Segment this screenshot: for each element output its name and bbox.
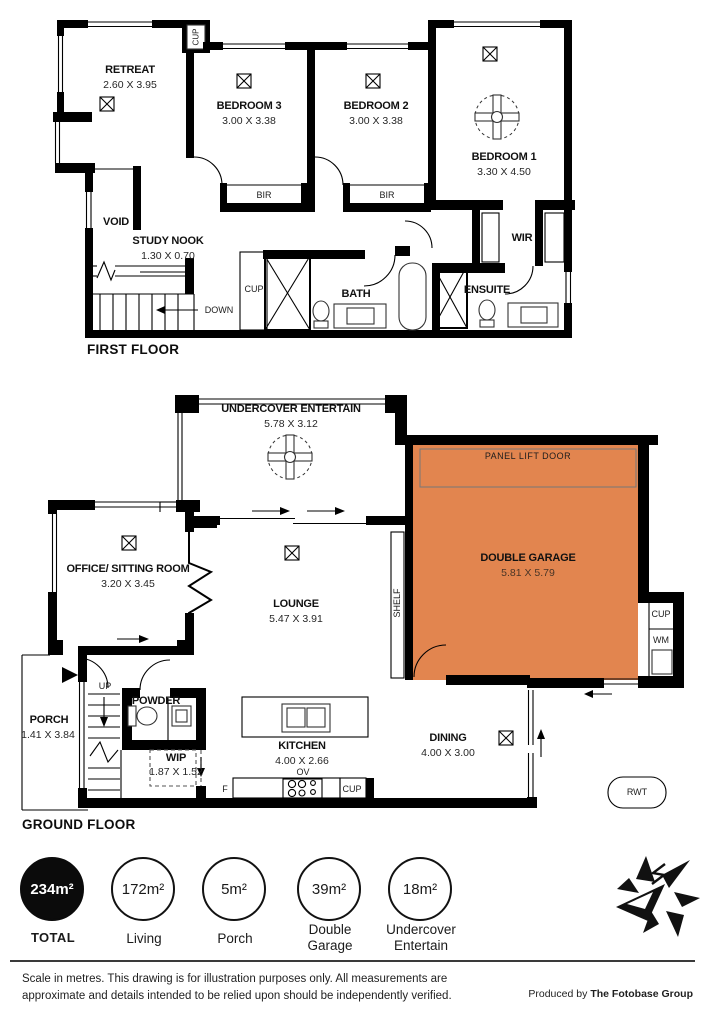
- room-dims-kitchen: 4.00 X 2.66: [275, 755, 329, 767]
- toilet-icon: [128, 706, 157, 726]
- washing-machine-icon: [652, 650, 672, 674]
- room-label-void: VOID: [103, 216, 129, 228]
- fotobase-compass-logo: [616, 856, 700, 937]
- cup-label-top: CUP: [192, 29, 201, 46]
- ground-floor-plan: [22, 395, 684, 810]
- room-label-powder: POWDER: [132, 695, 180, 707]
- room-dims-study-nook: 1.30 X 0.70: [141, 250, 195, 262]
- wm-label: WM: [653, 635, 669, 645]
- room-label-garage: DOUBLE GARAGE: [480, 552, 575, 564]
- area-circle-porch: 5m²: [202, 857, 266, 921]
- ceiling-fan-icon: [475, 95, 519, 139]
- bathtub-icon: [399, 263, 426, 330]
- room-label-wir: WIR: [512, 232, 533, 244]
- room-label-office: OFFICE/ SITTING ROOM: [66, 563, 189, 575]
- room-dims-porch: 1.41 X 3.84: [21, 729, 75, 741]
- disclaimer-line-2: approximate and details intended to be r…: [22, 988, 452, 1005]
- room-label-study-nook: STUDY NOOK: [132, 235, 203, 247]
- dining-door-arrow-icon: [537, 729, 545, 757]
- cup-label-hall: CUP: [244, 284, 263, 294]
- room-label-dining: DINING: [429, 732, 466, 744]
- room-label-lounge: LOUNGE: [273, 598, 319, 610]
- down-label: DOWN: [205, 305, 234, 315]
- disclaimer-text: Scale in metres. This drawing is for ill…: [22, 971, 452, 1006]
- area-circle-living: 172m²: [111, 857, 175, 921]
- area-circle-total: 234m²: [20, 857, 84, 921]
- room-dims-retreat: 2.60 X 3.95: [103, 79, 157, 91]
- bir-label-bed2: BIR: [379, 190, 394, 200]
- room-label-bedroom2: BEDROOM 2: [344, 100, 409, 112]
- room-label-kitchen: KITCHEN: [278, 740, 326, 752]
- room-label-retreat: RETREAT: [105, 64, 155, 76]
- cup-label-garage: CUP: [651, 609, 670, 619]
- fridge-label: F: [222, 784, 228, 794]
- floorplan-page: .w{fill:#000;} .tl{stroke:#000;stroke-wi…: [0, 0, 705, 1024]
- hall-arrow-icon: [117, 635, 149, 643]
- entry-arrow-icon: [62, 667, 78, 683]
- room-dims-bedroom1: 3.30 X 4.50: [477, 166, 531, 178]
- room-label-wip: WIP: [166, 752, 186, 764]
- linen-cupboard-icon: [265, 256, 310, 330]
- oven-label: OV: [296, 767, 309, 777]
- basin-icon: [172, 706, 191, 726]
- room-dims-office: 3.20 X 3.45: [101, 578, 155, 590]
- produced-by-prefix: Produced by: [528, 988, 587, 1000]
- area-circle-entertain: 18m²: [388, 857, 452, 921]
- room-label-entertain: UNDERCOVER ENTERTAIN: [221, 403, 360, 415]
- toilet-icon: [313, 301, 329, 328]
- area-label-garage: Double Garage: [295, 922, 365, 953]
- room-dims-lounge: 5.47 X 3.91: [269, 613, 323, 625]
- down-arrow-icon: [156, 306, 198, 314]
- ceiling-fan-icon: [268, 435, 312, 479]
- room-label-ensuite: ENSUITE: [464, 284, 510, 296]
- up-arrow-icon: [100, 697, 108, 727]
- room-dims-dining: 4.00 X 3.00: [421, 747, 475, 759]
- vent-icon: [100, 47, 497, 111]
- rwt-label: RWT: [627, 787, 647, 797]
- area-label-porch: Porch: [185, 931, 285, 947]
- produced-by-brand: The Fotobase Group: [590, 988, 693, 1000]
- produced-by: Produced byThe Fotobase Group: [528, 988, 693, 1000]
- vanity-icon: [508, 303, 558, 327]
- up-label: UP: [99, 681, 112, 691]
- area-label-entertain: Undercover Entertain: [375, 922, 467, 953]
- room-label-bath: BATH: [342, 288, 371, 300]
- room-dims-wip: 1.87 X 1.52: [149, 766, 203, 778]
- footer-divider: [10, 960, 695, 962]
- area-circle-garage: 39m²: [297, 857, 361, 921]
- room-dims-bedroom2: 3.00 X 3.38: [349, 115, 403, 127]
- bir-label-bed3: BIR: [256, 190, 271, 200]
- slide-arrow-icon: [252, 507, 345, 515]
- room-label-bedroom1: BEDROOM 1: [472, 151, 537, 163]
- area-label-total: TOTAL: [3, 931, 103, 946]
- toilet-icon: [479, 300, 495, 327]
- room-dims-garage: 5.81 X 5.79: [501, 567, 555, 579]
- first-floor-title: FIRST FLOOR: [87, 342, 179, 357]
- panel-lift-door-label: PANEL LIFT DOOR: [485, 451, 571, 461]
- room-label-bedroom3: BEDROOM 3: [217, 100, 282, 112]
- rear-door-arrow-icon: [584, 690, 612, 698]
- sink-icon: [282, 704, 330, 732]
- shelf-label: SHELF: [392, 588, 402, 617]
- room-dims-bedroom3: 3.00 X 3.38: [222, 115, 276, 127]
- cooktop-icon: [283, 779, 322, 798]
- cup-label-kitchen: CUP: [342, 784, 361, 794]
- disclaimer-line-1: Scale in metres. This drawing is for ill…: [22, 971, 452, 988]
- room-label-porch: PORCH: [30, 714, 69, 726]
- ground-floor-title: GROUND FLOOR: [22, 817, 135, 832]
- room-dims-entertain: 5.78 X 3.12: [264, 418, 318, 430]
- area-label-living: Living: [94, 931, 194, 947]
- vanity-icon: [334, 304, 386, 328]
